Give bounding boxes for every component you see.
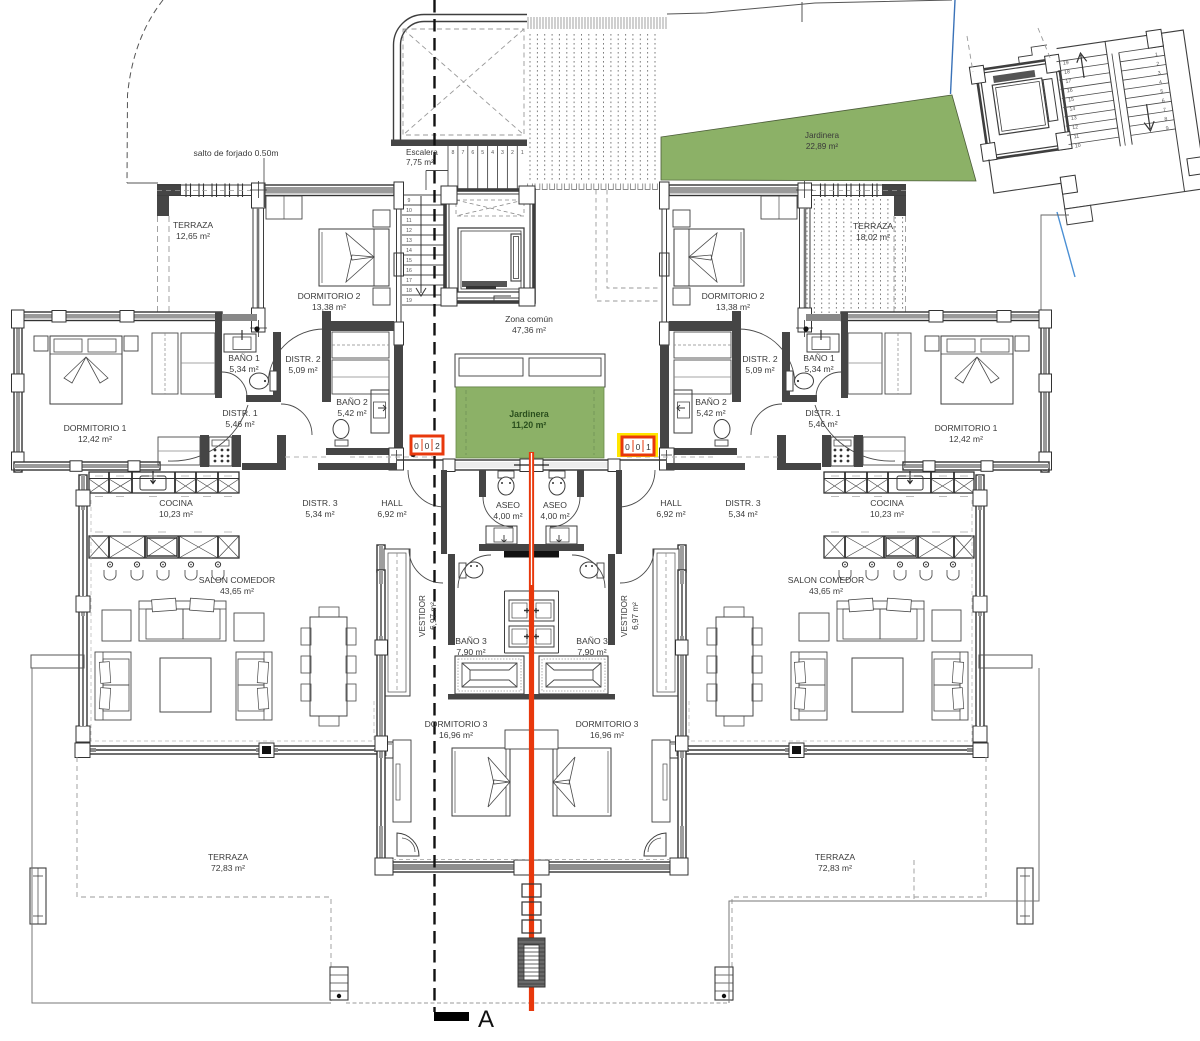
svg-text:BAÑO 3: BAÑO 3 bbox=[455, 636, 487, 646]
svg-text:14: 14 bbox=[406, 248, 412, 254]
svg-text:47,36 m²: 47,36 m² bbox=[512, 325, 546, 335]
svg-text:7,90 m²: 7,90 m² bbox=[577, 647, 606, 657]
svg-text:13: 13 bbox=[406, 238, 412, 244]
svg-text:6: 6 bbox=[471, 150, 474, 156]
svg-text:DORMITORIO 2: DORMITORIO 2 bbox=[702, 291, 765, 301]
svg-text:16,96 m²: 16,96 m² bbox=[439, 730, 473, 740]
svg-text:DISTR. 1: DISTR. 1 bbox=[805, 408, 841, 418]
svg-text:43,65 m²: 43,65 m² bbox=[809, 586, 843, 596]
svg-text:5,46 m²: 5,46 m² bbox=[808, 419, 837, 429]
svg-text:72,83 m²: 72,83 m² bbox=[211, 863, 245, 873]
svg-text:11: 11 bbox=[1073, 134, 1079, 141]
svg-text:12,65 m²: 12,65 m² bbox=[176, 231, 210, 241]
svg-text:5,42 m²: 5,42 m² bbox=[696, 408, 725, 418]
svg-text:BAÑO 1: BAÑO 1 bbox=[228, 353, 260, 363]
svg-text:15: 15 bbox=[406, 258, 412, 264]
svg-text:1: 1 bbox=[646, 442, 651, 452]
svg-text:2: 2 bbox=[511, 150, 514, 156]
svg-text:1: 1 bbox=[521, 150, 524, 156]
svg-text:15: 15 bbox=[1068, 97, 1075, 104]
svg-text:Escalera: Escalera bbox=[406, 148, 438, 157]
svg-text:16,96 m²: 16,96 m² bbox=[590, 730, 624, 740]
svg-text:19: 19 bbox=[406, 298, 412, 304]
svg-text:A: A bbox=[478, 1006, 494, 1033]
svg-text:12: 12 bbox=[406, 228, 412, 234]
svg-text:18: 18 bbox=[406, 288, 412, 294]
svg-text:11: 11 bbox=[406, 218, 411, 224]
svg-text:19: 19 bbox=[1063, 60, 1070, 67]
svg-text:salto de forjado 0.50m: salto de forjado 0.50m bbox=[193, 148, 278, 158]
svg-text:13,38 m²: 13,38 m² bbox=[312, 302, 346, 312]
svg-text:0: 0 bbox=[636, 442, 641, 452]
svg-text:7: 7 bbox=[461, 150, 464, 156]
svg-text:4,00 m²: 4,00 m² bbox=[493, 511, 522, 521]
svg-text:6,97 m²: 6,97 m² bbox=[429, 602, 438, 630]
svg-text:0: 0 bbox=[414, 441, 419, 451]
svg-text:COCINA: COCINA bbox=[870, 498, 904, 508]
svg-text:DORMITORIO 3: DORMITORIO 3 bbox=[576, 719, 639, 729]
svg-text:5,34 m²: 5,34 m² bbox=[305, 509, 334, 519]
svg-text:22,89 m²: 22,89 m² bbox=[806, 142, 839, 151]
svg-text:8: 8 bbox=[452, 150, 455, 156]
svg-text:10,23 m²: 10,23 m² bbox=[870, 509, 904, 519]
svg-text:SALON COMEDOR: SALON COMEDOR bbox=[199, 575, 275, 585]
svg-text:17: 17 bbox=[1065, 78, 1072, 85]
svg-text:BAÑO 3: BAÑO 3 bbox=[576, 636, 608, 646]
svg-text:72,83 m²: 72,83 m² bbox=[818, 863, 852, 873]
svg-text:DORMITORIO 1: DORMITORIO 1 bbox=[935, 423, 998, 433]
svg-text:5,09 m²: 5,09 m² bbox=[745, 365, 774, 375]
svg-text:12: 12 bbox=[1072, 124, 1079, 131]
svg-text:DORMITORIO 2: DORMITORIO 2 bbox=[298, 291, 361, 301]
svg-text:0: 0 bbox=[625, 442, 630, 452]
svg-text:TERRAZA: TERRAZA bbox=[208, 852, 248, 862]
svg-text:7,75 m²: 7,75 m² bbox=[406, 158, 434, 167]
svg-text:10: 10 bbox=[406, 208, 412, 214]
svg-text:0: 0 bbox=[425, 441, 430, 451]
svg-text:5,34 m²: 5,34 m² bbox=[229, 364, 258, 374]
svg-text:7,90 m²: 7,90 m² bbox=[456, 647, 485, 657]
svg-text:ASEO: ASEO bbox=[496, 500, 520, 510]
svg-text:DORMITORIO 3: DORMITORIO 3 bbox=[425, 719, 488, 729]
svg-text:6,97 m²: 6,97 m² bbox=[631, 602, 640, 630]
svg-text:DISTR. 3: DISTR. 3 bbox=[725, 498, 761, 508]
svg-text:3: 3 bbox=[501, 150, 504, 156]
svg-text:COCINA: COCINA bbox=[159, 498, 193, 508]
svg-text:12,42 m²: 12,42 m² bbox=[949, 434, 983, 444]
svg-text:12,42 m²: 12,42 m² bbox=[78, 434, 112, 444]
svg-text:SALON COMEDOR: SALON COMEDOR bbox=[788, 575, 864, 585]
svg-text:18: 18 bbox=[1064, 69, 1071, 76]
svg-text:ASEO: ASEO bbox=[543, 500, 567, 510]
svg-text:13,38 m²: 13,38 m² bbox=[716, 302, 750, 312]
svg-text:VESTIDOR: VESTIDOR bbox=[620, 595, 629, 637]
svg-text:5,42 m²: 5,42 m² bbox=[337, 408, 366, 418]
svg-text:2: 2 bbox=[435, 441, 440, 451]
svg-text:43,65 m²: 43,65 m² bbox=[220, 586, 254, 596]
svg-text:VESTIDOR: VESTIDOR bbox=[418, 595, 427, 637]
svg-text:16: 16 bbox=[406, 268, 412, 274]
svg-text:10: 10 bbox=[1075, 143, 1082, 150]
svg-text:Zona común: Zona común bbox=[505, 314, 553, 324]
svg-text:Jardinera: Jardinera bbox=[805, 131, 840, 140]
svg-text:4,00 m²: 4,00 m² bbox=[540, 511, 569, 521]
svg-text:TERRAZA: TERRAZA bbox=[815, 852, 855, 862]
svg-text:DISTR. 1: DISTR. 1 bbox=[222, 408, 258, 418]
svg-text:TERRAZA: TERRAZA bbox=[173, 220, 213, 230]
svg-text:HALL: HALL bbox=[381, 498, 403, 508]
svg-text:BAÑO 2: BAÑO 2 bbox=[336, 397, 368, 407]
svg-text:TERRAZA: TERRAZA bbox=[853, 221, 893, 231]
svg-text:BAÑO 2: BAÑO 2 bbox=[695, 397, 727, 407]
svg-text:5,34 m²: 5,34 m² bbox=[728, 509, 757, 519]
svg-text:Jardinera: Jardinera bbox=[509, 409, 549, 419]
svg-text:9: 9 bbox=[408, 198, 411, 204]
svg-text:BAÑO 1: BAÑO 1 bbox=[803, 353, 835, 363]
svg-text:4: 4 bbox=[491, 150, 494, 156]
svg-text:DORMITORIO 1: DORMITORIO 1 bbox=[64, 423, 127, 433]
svg-text:DISTR. 2: DISTR. 2 bbox=[742, 354, 778, 364]
svg-text:5: 5 bbox=[481, 150, 484, 156]
svg-text:16: 16 bbox=[1067, 88, 1074, 95]
svg-text:5,34 m²: 5,34 m² bbox=[804, 364, 833, 374]
svg-text:18,02 m²: 18,02 m² bbox=[856, 232, 890, 242]
svg-text:DISTR. 3: DISTR. 3 bbox=[302, 498, 338, 508]
svg-text:6,92 m²: 6,92 m² bbox=[656, 509, 685, 519]
svg-text:13: 13 bbox=[1071, 115, 1078, 122]
svg-text:10,23 m²: 10,23 m² bbox=[159, 509, 193, 519]
svg-text:11,20 m²: 11,20 m² bbox=[512, 420, 547, 430]
svg-text:14: 14 bbox=[1069, 106, 1076, 113]
svg-text:6,92 m²: 6,92 m² bbox=[377, 509, 406, 519]
svg-text:HALL: HALL bbox=[660, 498, 682, 508]
svg-text:DISTR. 2: DISTR. 2 bbox=[285, 354, 321, 364]
svg-text:5,46 m²: 5,46 m² bbox=[225, 419, 254, 429]
svg-text:5,09 m²: 5,09 m² bbox=[288, 365, 317, 375]
svg-text:17: 17 bbox=[406, 278, 412, 284]
